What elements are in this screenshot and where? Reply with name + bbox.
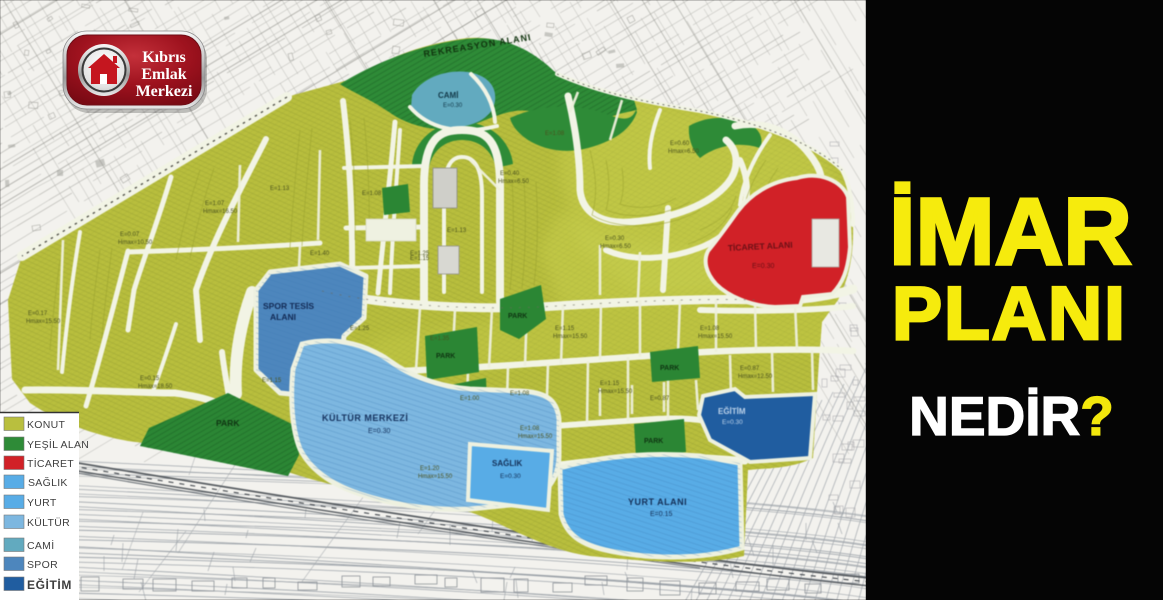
svg-text:YURT: YURT — [27, 497, 57, 509]
svg-text:CAMİ: CAMİ — [27, 539, 54, 552]
svg-text:Emlak: Emlak — [141, 66, 186, 83]
svg-text:Merkezi: Merkezi — [136, 83, 193, 100]
svg-text:KÜLTÜR: KÜLTÜR — [27, 517, 70, 529]
svg-text:SPOR: SPOR — [27, 559, 58, 571]
svg-text:KONUT: KONUT — [27, 419, 66, 431]
svg-text:EĞİTİM: EĞİTİM — [27, 577, 72, 592]
svg-text:Kıbrıs: Kıbrıs — [142, 49, 186, 66]
svg-text:TİCARET: TİCARET — [27, 457, 74, 470]
svg-text:YEŞİL ALAN: YEŞİL ALAN — [27, 438, 89, 451]
svg-text:SAĞLIK: SAĞLIK — [28, 476, 68, 489]
